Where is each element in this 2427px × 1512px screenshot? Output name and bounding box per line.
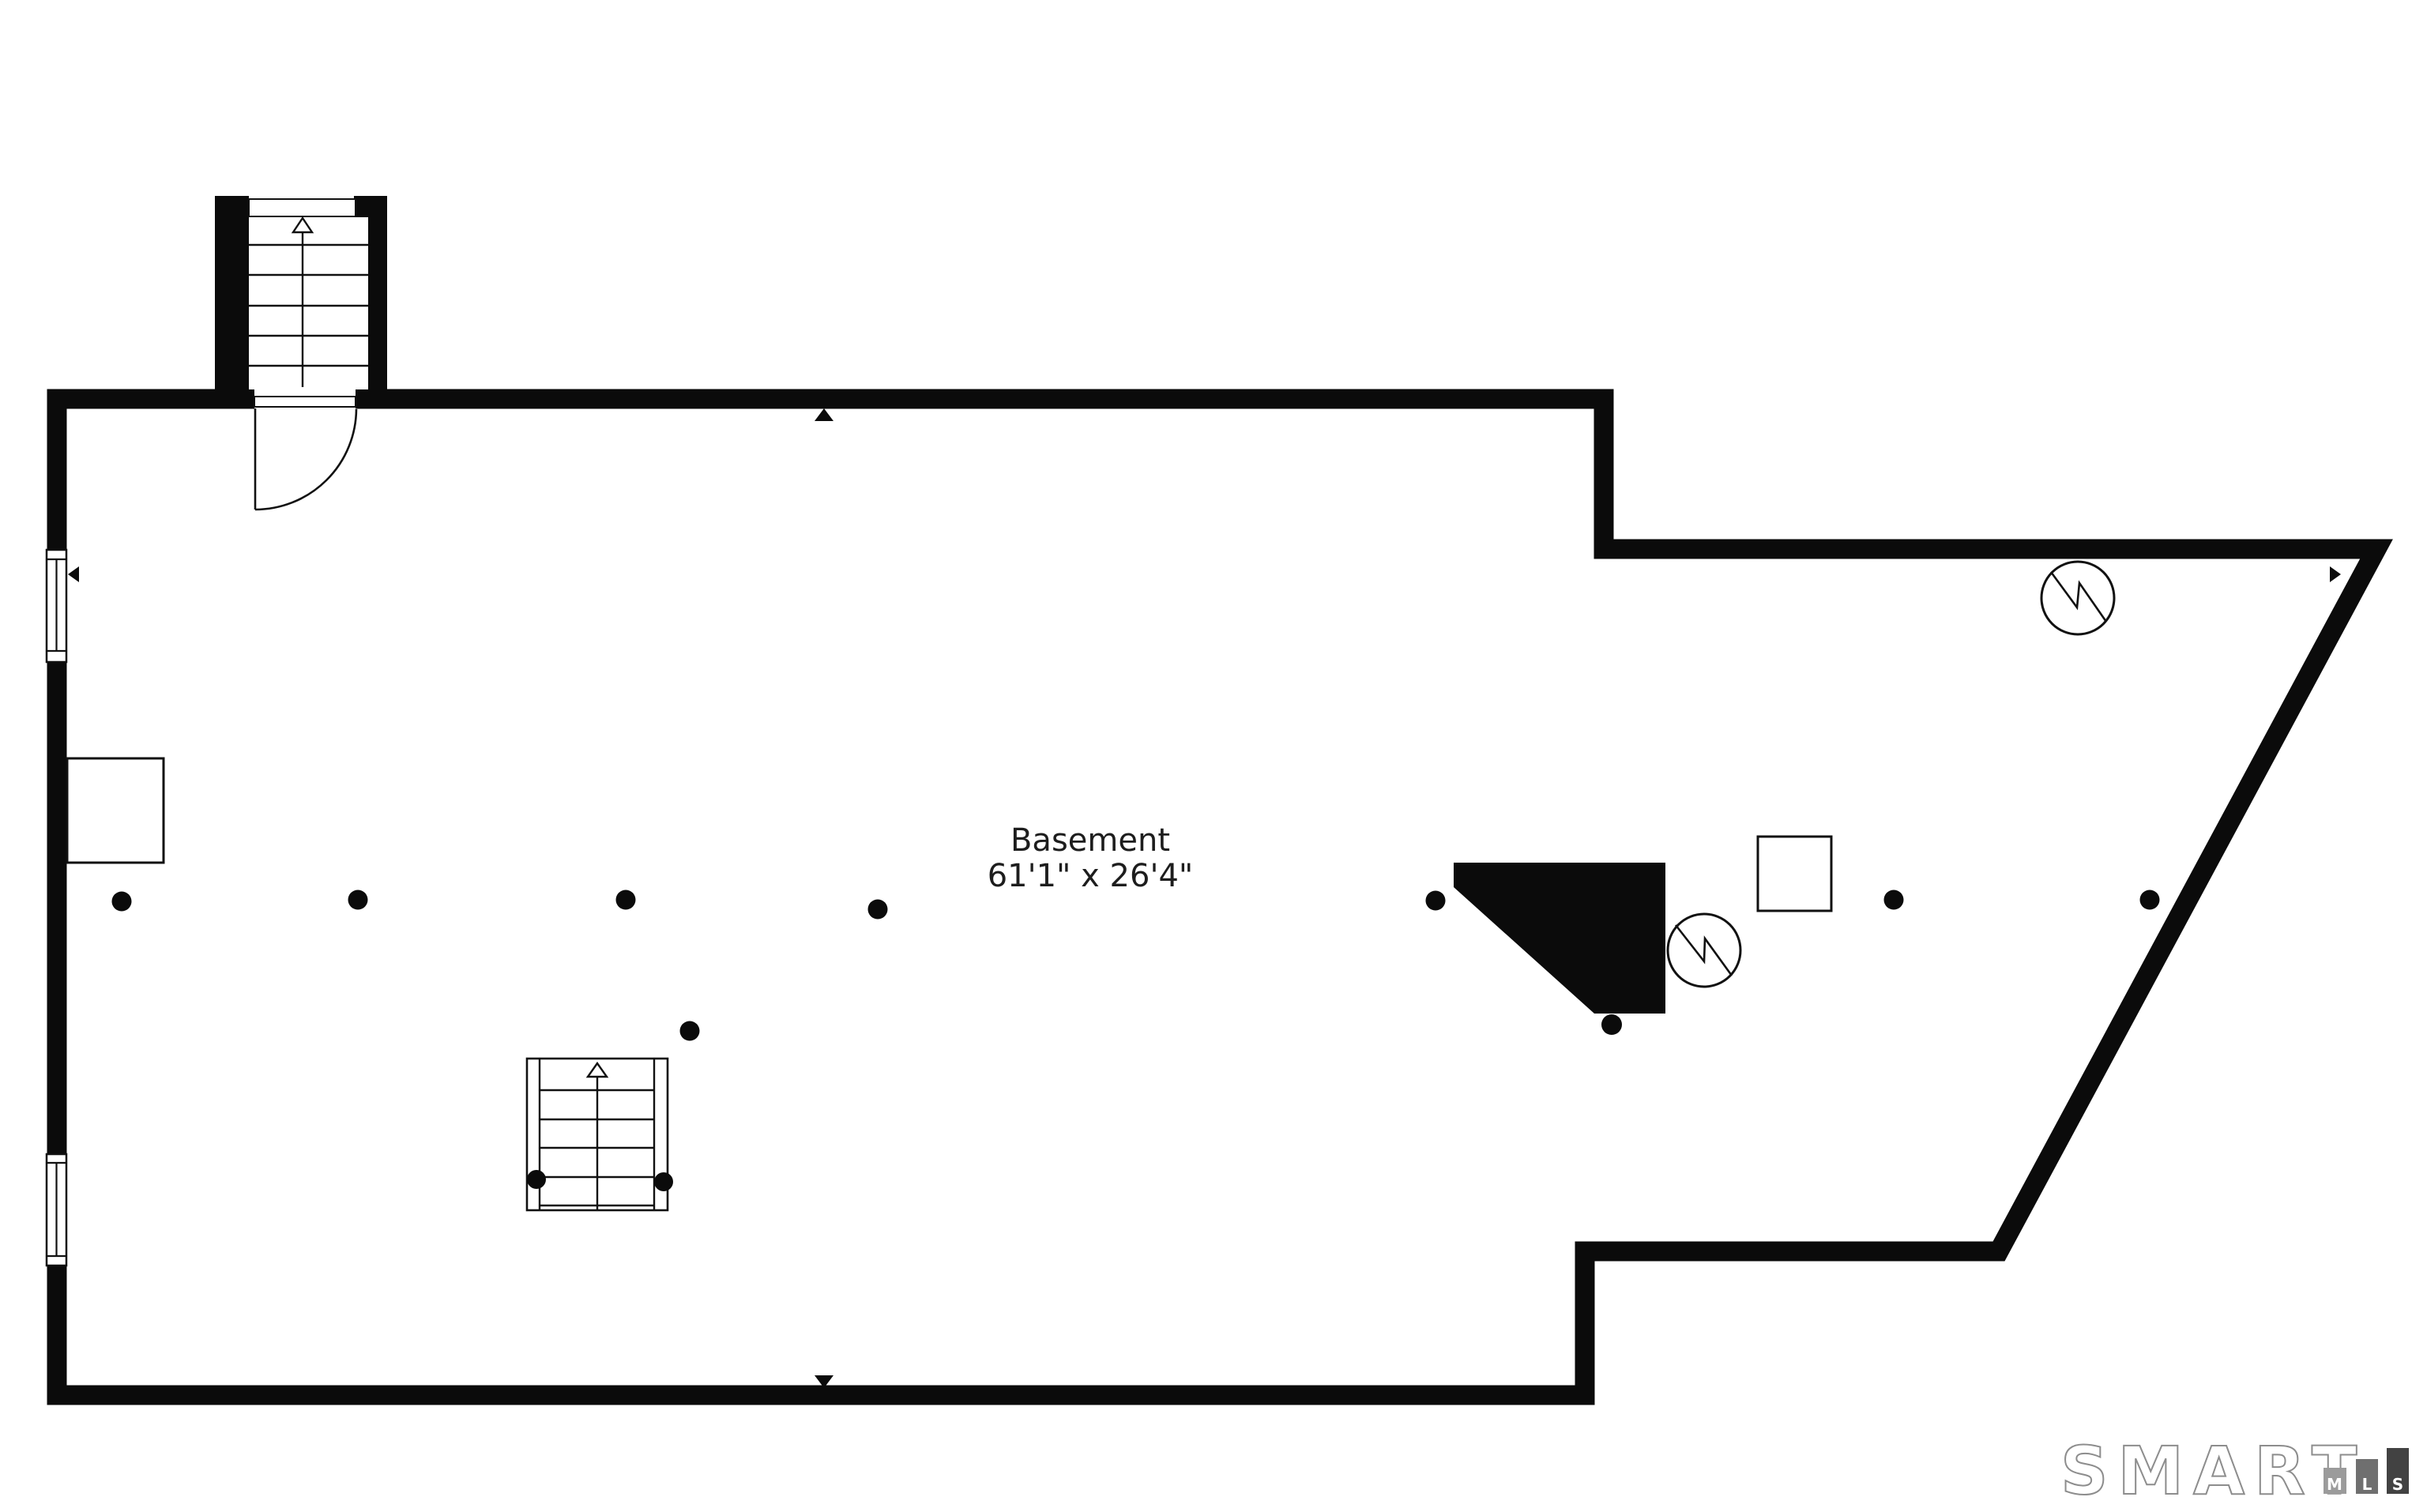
column-dot	[112, 892, 132, 912]
logo-bar-m-label: M	[2327, 1475, 2342, 1494]
column-dot	[680, 1021, 700, 1041]
column-dot	[654, 1172, 673, 1191]
column-dot	[527, 1170, 546, 1189]
stairwell-top-left	[215, 196, 387, 405]
column-dot	[616, 890, 636, 910]
staircase-middle	[527, 1059, 668, 1210]
stairwell-wall-left	[215, 196, 249, 405]
floorplan-canvas: Basement 61'1" x 26'4" SMART M L S	[0, 0, 2427, 1512]
room-title: Basement	[1010, 822, 1170, 859]
window-upper-left	[47, 550, 66, 662]
column-dot	[1601, 1014, 1622, 1035]
room-dimensions: 61'1" x 26'4"	[988, 858, 1194, 894]
column-dot	[1426, 891, 1446, 911]
logo-bar-l-label: L	[2362, 1475, 2372, 1494]
water-heater-icon	[2041, 562, 2114, 634]
fixture-square-right	[1758, 837, 1831, 911]
stairwell-wall-right	[368, 196, 387, 405]
window-lower-left	[47, 1154, 66, 1266]
floorplan-page: Basement 61'1" x 26'4" SMART M L S	[0, 0, 2427, 1512]
fixture-square-left	[67, 758, 164, 863]
column-dot	[1884, 890, 1904, 910]
water-heater-icon	[1668, 914, 1740, 987]
column-dot	[868, 900, 888, 920]
stairwell-wall-top-left-seg	[215, 196, 249, 217]
logo-wordmark: SMART	[2060, 1432, 2366, 1510]
column-dot	[2140, 890, 2160, 910]
column-dot	[348, 890, 368, 910]
smartmls-logo: SMART M L S	[2060, 1432, 2409, 1510]
exterior-walls	[57, 399, 2376, 1395]
stairwell-top-landing	[249, 199, 356, 216]
logo-bar-s-label: S	[2392, 1475, 2403, 1494]
door-threshold	[254, 397, 356, 407]
stairwell-wall-top-right-seg	[354, 196, 387, 217]
